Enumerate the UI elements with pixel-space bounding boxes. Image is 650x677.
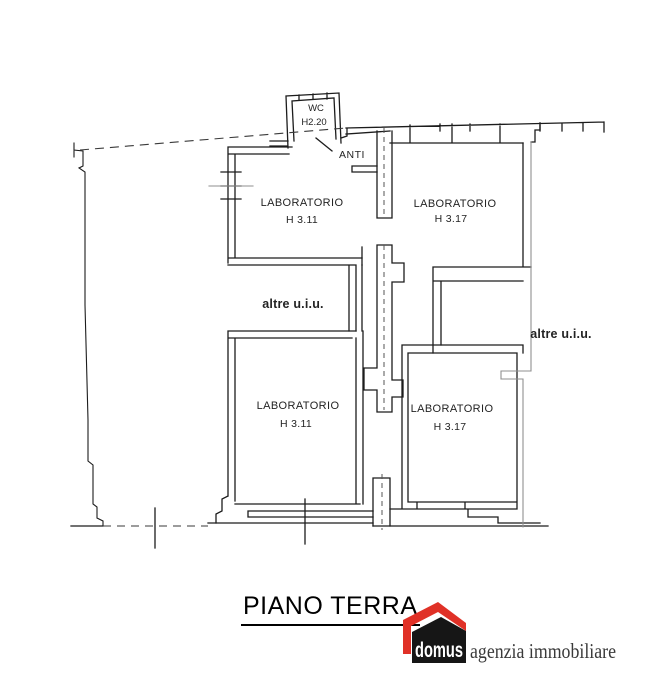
annotation-altre-left: altre u.i.u. xyxy=(262,297,323,311)
room-label-bottom-right: LABORATORIO xyxy=(411,403,494,415)
room-top-right-walls xyxy=(433,123,540,353)
spine-wall-middle xyxy=(362,245,404,412)
walls-outline xyxy=(71,93,604,548)
anti-label: ANTI xyxy=(339,149,365,161)
ground-lines xyxy=(71,508,548,548)
room-height-bottom-right: H 3.17 xyxy=(434,421,467,433)
page-title: PIANO TERRA xyxy=(241,592,420,626)
floor-plan-drawing: WC H2.20 ANTI LABORATORIO H 3.11 LABORAT… xyxy=(0,0,650,677)
room-height-top-right: H 3.17 xyxy=(435,213,468,225)
site-boundary-left xyxy=(74,143,103,526)
domus-logo: domus agenzia immobiliare xyxy=(400,598,640,673)
room-height-top-left: H 3.11 xyxy=(286,214,318,226)
wc-label: WC xyxy=(308,103,324,114)
dashed-site-diagonal xyxy=(80,128,346,150)
room-label-top-right: LABORATORIO xyxy=(414,198,497,210)
room-bottom-left-walls xyxy=(216,331,373,544)
top-wall xyxy=(346,122,604,143)
logo-wordmark: domus xyxy=(415,639,463,662)
wc-height-label: H2.20 xyxy=(301,117,326,128)
room-label-top-left: LABORATORIO xyxy=(261,197,344,209)
annotation-altre-right: altre u.i.u. xyxy=(530,327,591,341)
dashed-lines xyxy=(80,128,384,530)
floor-plan-page: WC H2.20 ANTI LABORATORIO H 3.11 LABORAT… xyxy=(0,0,650,677)
agency-name: agenzia immobiliare xyxy=(470,639,616,663)
room-height-bottom-left: H 3.11 xyxy=(280,418,312,430)
dashed-partition-centerlines xyxy=(382,128,384,530)
room-label-bottom-left: LABORATORIO xyxy=(257,400,340,412)
room-bottom-right-walls xyxy=(390,345,540,523)
right-outer-boundary xyxy=(501,142,531,527)
